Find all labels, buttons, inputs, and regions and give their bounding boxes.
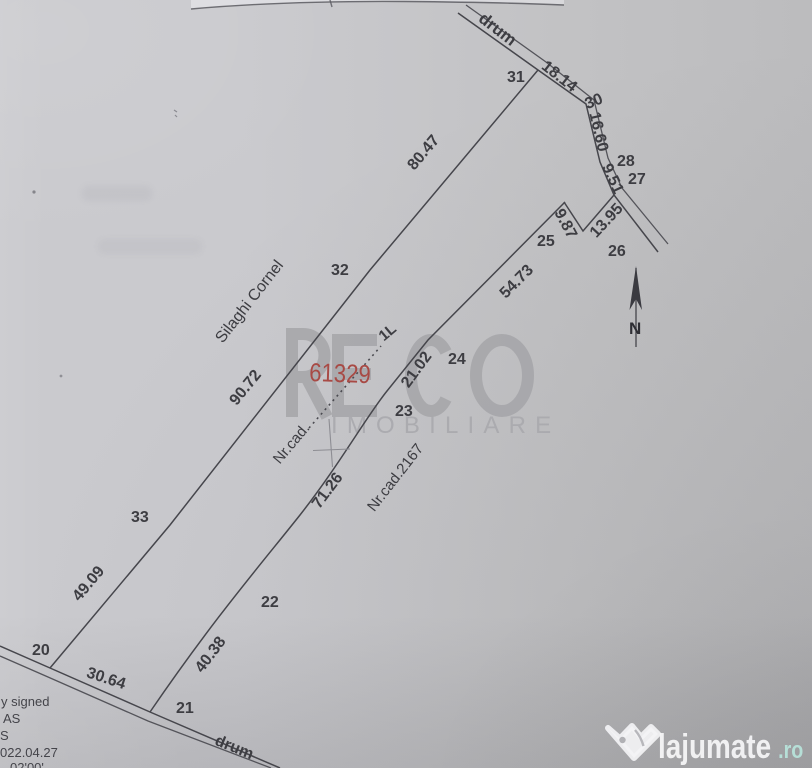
svg-text:49.09: 49.09 [69, 563, 108, 605]
svg-text:N: N [629, 319, 641, 338]
svg-text:61329: 61329 [309, 358, 371, 389]
svg-text:.ro: .ro [778, 736, 803, 763]
svg-text:13.95: 13.95 [587, 200, 627, 241]
svg-text:Silaghi Cornel: Silaghi Cornel [212, 257, 287, 346]
svg-text:16.60: 16.60 [585, 111, 611, 154]
svg-text:18.14: 18.14 [538, 58, 580, 96]
svg-text:02'00': 02'00' [10, 760, 44, 768]
svg-text:20: 20 [32, 642, 50, 659]
svg-text:30.64: 30.64 [84, 664, 127, 693]
svg-text:9.87: 9.87 [550, 206, 580, 242]
svg-text:AS: AS [3, 711, 21, 726]
svg-text:54.73: 54.73 [497, 262, 537, 302]
svg-text:drum: drum [212, 732, 255, 763]
svg-text:28: 28 [617, 153, 635, 170]
svg-text:1L: 1L [375, 320, 399, 344]
svg-text:S: S [0, 728, 9, 743]
svg-text:32: 32 [331, 262, 349, 279]
svg-text:40.38: 40.38 [192, 634, 230, 676]
svg-text:Nr.cad.: Nr.cad. [270, 420, 314, 467]
svg-text:23: 23 [395, 403, 413, 420]
svg-text:25: 25 [537, 233, 555, 250]
svg-text:y signed: y signed [1, 694, 49, 709]
svg-text:22: 22 [261, 594, 279, 611]
svg-text:022.04.27: 022.04.27 [0, 745, 58, 760]
svg-text:IMOBILIARE: IMOBILIARE [331, 412, 560, 439]
svg-text:24: 24 [448, 351, 466, 368]
svg-text:21: 21 [176, 700, 194, 717]
svg-text:26: 26 [608, 243, 626, 260]
svg-text:90.72: 90.72 [227, 367, 265, 409]
svg-text:27: 27 [628, 171, 646, 188]
svg-text:80.47: 80.47 [404, 132, 443, 174]
svg-text:31: 31 [507, 69, 525, 86]
svg-text:Nr.cad.2167: Nr.cad.2167 [364, 441, 427, 515]
svg-text:lajumate: lajumate [658, 727, 771, 765]
svg-text:71.26: 71.26 [309, 470, 347, 512]
svg-text:33: 33 [131, 509, 149, 526]
